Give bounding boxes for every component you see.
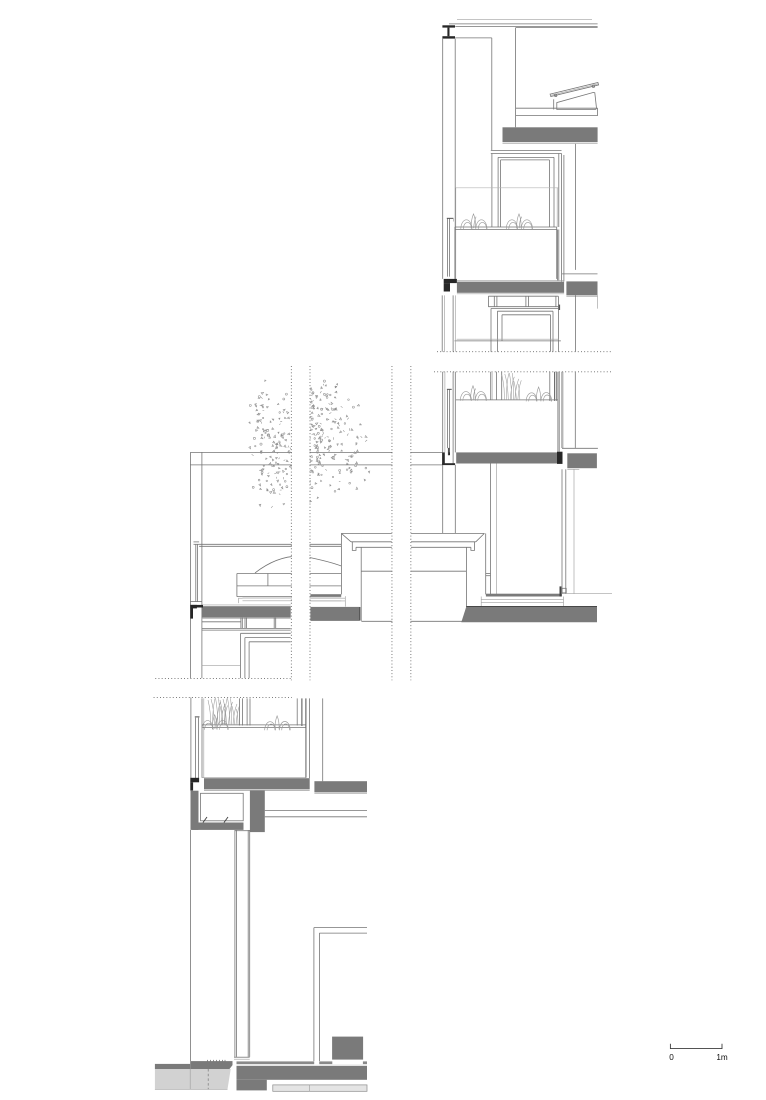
svg-text:1m: 1m xyxy=(716,1053,728,1062)
svg-text:0: 0 xyxy=(669,1053,674,1062)
